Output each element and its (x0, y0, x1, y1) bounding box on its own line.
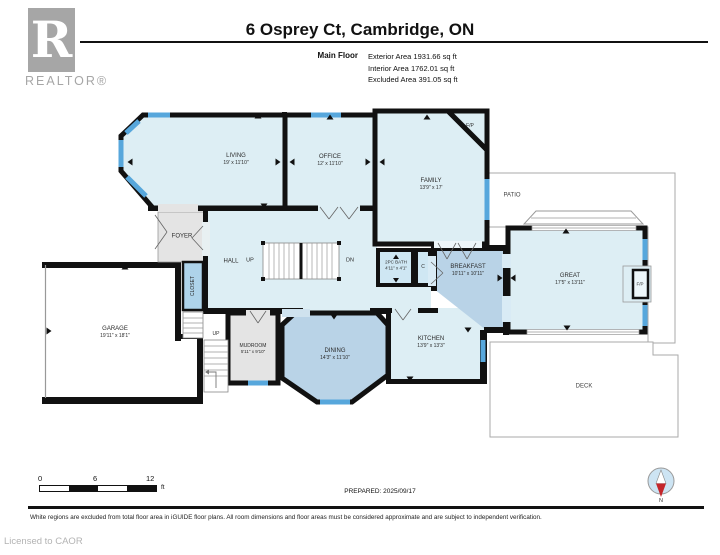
disclaimer-text: White regions are excluded from total fl… (30, 514, 710, 521)
stairs-main (261, 241, 341, 281)
floor-plan-page: R REALTOR® 6 Osprey Ct, Cambridge, ON Ma… (0, 0, 720, 555)
label-stairs-down: DN (346, 258, 354, 265)
room-label-kitchen: KITCHEN13'9" x 13'3" (417, 336, 444, 350)
patio-step (524, 211, 643, 224)
label-closet: CLOSET (190, 276, 196, 296)
scale-unit: ft (161, 484, 165, 491)
area-stats: Exterior Area 1931.66 sq ft Interior Are… (368, 51, 458, 86)
room-label-great: GREAT17'5" x 13'11" (555, 273, 585, 287)
stairs-landing (183, 312, 203, 338)
compass-n-label: N (659, 498, 663, 504)
room-label-dining: DINING14'3" x 11'10" (320, 348, 350, 362)
scale-tick-6: 6 (93, 474, 97, 483)
page-title: 6 Osprey Ct, Cambridge, ON (0, 20, 720, 40)
scale-bar-segments (39, 485, 157, 492)
room-label-living: LIVING19' x 11'10" (223, 153, 248, 167)
room-label-mudroom: MUDROOM5'11" x 9'10" (240, 343, 267, 355)
stat-excluded: Excluded Area 391.05 sq ft (368, 74, 458, 86)
label-fireplace-great: F/P (636, 281, 643, 287)
label-patio: PATIO (503, 193, 520, 200)
label-foyer: FOYER (172, 234, 193, 241)
realtor-logo: R (28, 8, 75, 72)
license-text: Licensed to CAOR (4, 536, 83, 547)
scale-tick-0: 0 (38, 474, 42, 483)
label-closet-c: C (421, 264, 425, 270)
room-label-garage: GARAGE19'11" x 18'1" (100, 326, 130, 340)
label-deck: DECK (576, 384, 593, 391)
stat-exterior: Exterior Area 1931.66 sq ft (368, 51, 458, 63)
scale-bar: 0 6 12 ft (38, 474, 178, 496)
scale-tick-12: 12 (146, 474, 154, 483)
compass-icon (648, 468, 674, 497)
label-hall: HALL (223, 259, 238, 266)
room-label-office: OFFICE12' x 11'10" (317, 154, 342, 168)
floor-label: Main Floor (250, 51, 358, 60)
prepared-date: PREPARED: 2025/09/17 (280, 488, 480, 495)
stat-interior: Interior Area 1762.01 sq ft (368, 63, 458, 75)
realtor-logo-text: REALTOR® (25, 74, 108, 88)
label-fireplace-family: F/P (466, 123, 474, 129)
label-stairs-up2: UP (213, 331, 220, 337)
room-label-family: FAMILY13'9" x 17' (420, 178, 443, 192)
label-stairs-up: UP (246, 258, 254, 265)
room-label-breakfast: BREAKFAST10'11" x 10'11" (450, 264, 485, 278)
room-label-bath: 2PC BATH4'11" x 4'1" (385, 260, 407, 271)
footer-divider (28, 506, 704, 509)
header-divider (80, 41, 708, 43)
